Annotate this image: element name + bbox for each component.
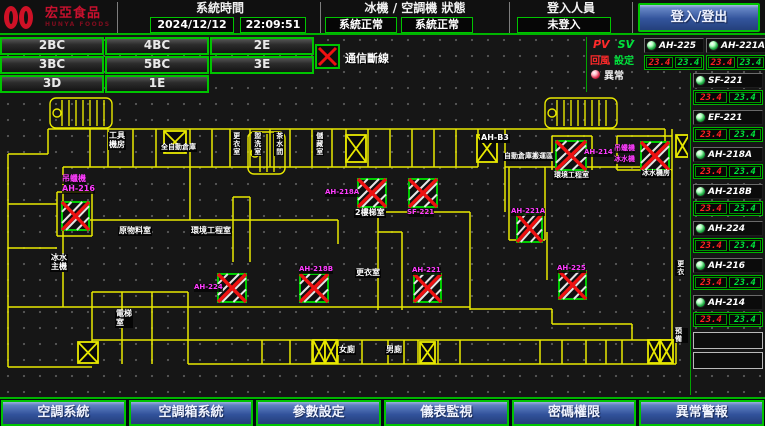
ahu-comm-fail-icon[interactable] (300, 274, 328, 302)
pv-value: 23.4 (695, 129, 727, 140)
unit-label: AH-224 (708, 224, 745, 234)
hatch-box-icon (676, 135, 688, 157)
floor-button-1E[interactable]: 1E (105, 75, 209, 93)
unit-name-row[interactable]: AH-218A (693, 147, 763, 162)
plan-room-label: 更衣 (675, 260, 685, 276)
brand-name: 宏亞食品 (45, 7, 111, 20)
unit-name-row[interactable]: AH-224 (693, 221, 763, 236)
ahu-comm-fail-icon[interactable] (409, 179, 437, 207)
plan-room-label: 原物料室 (118, 227, 152, 236)
plan-equipment-label: 吊蠟機 (62, 175, 86, 184)
unit-AH-224: AH-22423.423.4 (693, 221, 763, 253)
sv-value: 23.4 (729, 314, 761, 325)
plan-equipment-label: AH-218A (325, 189, 359, 197)
plan-equipment-label: AH-221 (412, 267, 441, 275)
unit-label: AH-225 (659, 41, 696, 51)
status-lamp-icon (695, 186, 706, 197)
status-lamp-icon (708, 40, 719, 51)
bottom-nav-bar: 空調系統空調箱系統參數設定儀表監視密碼權限異常警報 (0, 397, 765, 426)
unit-label: AH-216 (708, 261, 745, 271)
unit-name-row[interactable]: EF-221 (693, 110, 763, 125)
sv-value: 23.4 (729, 92, 761, 103)
unit-AH-216: AH-21623.423.4 (693, 258, 763, 290)
sv-value: 23.4 (729, 166, 761, 177)
unit-label: AH-218A (708, 150, 752, 160)
status-lamp-icon (695, 223, 706, 234)
plan-equipment-label: AH-225 (557, 265, 586, 273)
pv-value: 23.4 (695, 203, 727, 214)
plan-equipment-label: AH-224 (194, 284, 223, 292)
ahu-comm-fail-icon[interactable] (414, 274, 441, 302)
unit-name-row[interactable]: AH-214 (693, 295, 763, 310)
unit-name-row[interactable]: AH-221A (706, 38, 765, 53)
unit-values: 23.423.4 (644, 55, 704, 70)
company-logo: 宏亞食品 HUNYA FOODS (4, 3, 116, 32)
header-divider (117, 2, 118, 33)
unit-EF-221: EF-22123.423.4 (693, 110, 763, 142)
ahu-comm-fail-icon[interactable] (358, 179, 386, 207)
plan-room-label: 環境工程室 (190, 227, 232, 236)
plan-equipment-label: AH-216 (62, 185, 95, 194)
plan-room-label: 2樓梯室 (354, 209, 386, 218)
unit-label: SF-221 (708, 76, 743, 86)
header-divider (320, 2, 321, 33)
system-date-value: 2024/12/12 (150, 17, 234, 33)
floor-button-5BC[interactable]: 5BC (105, 56, 209, 74)
plan-room-label: 全自動倉庫 (160, 144, 197, 152)
plan-room-label: 冰水機房 (641, 170, 671, 178)
floor-button-empty (210, 75, 314, 93)
top-unit-row: AH-22523.423.4AH-221A23.423.4 (644, 38, 765, 70)
system-time-label: 系統時間 (130, 1, 310, 15)
plan-equipment-label: 吊蠟機 (614, 145, 635, 153)
nav-button-儀表監視[interactable]: 儀表監視 (384, 400, 509, 426)
sv-label: SV (618, 38, 634, 51)
login-user-label: 登入人員 (512, 1, 630, 15)
unit-values: 23.423.4 (706, 55, 765, 70)
plan-room-label: 冰水 主機 (50, 254, 68, 272)
ahu-comm-fail-icon[interactable] (556, 141, 586, 170)
pv-value: 23.4 (695, 314, 727, 325)
unit-name-row[interactable]: SF-221 (693, 73, 763, 88)
plan-room-label: 盥洗室 (252, 132, 262, 156)
pv-value: 23.4 (708, 57, 735, 68)
unit-values: 23.423.4 (693, 127, 763, 142)
pv-value: 23.4 (695, 277, 727, 288)
unit-AH-225: AH-22523.423.4 (644, 38, 704, 70)
logo-icon (4, 5, 40, 31)
plan-room-label: 儲藏室 (314, 132, 324, 156)
hatch-box-icon (648, 340, 660, 363)
nav-button-空調系統[interactable]: 空調系統 (1, 400, 126, 426)
plan-room-label: 環境工程室 (553, 172, 590, 180)
unit-AH-218B: AH-218B23.423.4 (693, 184, 763, 216)
plan-room-label: 更衣室 (355, 269, 381, 278)
floor-button-3D[interactable]: 3D (0, 75, 104, 93)
floor-button-4BC[interactable]: 4BC (105, 37, 209, 55)
plan-equipment-label: AH-218B (299, 266, 333, 274)
sv-value: 23.4 (729, 129, 761, 140)
unit-values: 23.423.4 (693, 201, 763, 216)
status-lamp-icon (646, 40, 657, 51)
plan-room-label: 茶水間 (274, 132, 284, 156)
plan-equipment-label: AH-214 (584, 149, 613, 157)
plan-room-label: 男廁 (385, 346, 403, 355)
status-lamp-icon (695, 112, 706, 123)
comm-fail-label: 通信斷線 (345, 50, 389, 66)
nav-button-異常警報[interactable]: 異常警報 (639, 400, 764, 426)
ahu-comm-fail-icon[interactable] (517, 214, 542, 242)
unit-name-row[interactable]: AH-218B (693, 184, 763, 199)
plan-equipment-label: AH-221A (511, 208, 545, 216)
system-time-value: 22:09:51 (240, 17, 306, 33)
brand-subname: HUNYA FOODS (45, 22, 111, 28)
sv-value: 23.4 (729, 277, 761, 288)
status-lamp-icon (695, 75, 706, 86)
ahu-comm-fail-icon[interactable] (62, 202, 89, 230)
pv-legend-label: 回風 (590, 52, 610, 67)
status-lamp-icon (695, 260, 706, 271)
logo-arc (4, 6, 18, 29)
login-status-value: 未登入 (517, 17, 611, 33)
sv-legend-label: 設定 (614, 52, 634, 67)
comm-fail-icon (315, 44, 340, 69)
nav-button-參數設定[interactable]: 參數設定 (256, 400, 381, 426)
floor-button-3E[interactable]: 3E (210, 56, 314, 74)
status-lamp-icon (695, 297, 706, 308)
hatch-box-icon (313, 340, 325, 363)
status-lamp-icon (695, 149, 706, 160)
unit-values: 23.423.4 (693, 164, 763, 179)
alarm-lamp-icon (590, 69, 601, 80)
pv-value: 23.4 (646, 57, 673, 68)
plan-equipment-label: SF-221 (407, 209, 434, 217)
floor-button-3BC[interactable]: 3BC (0, 56, 104, 74)
floor-button-2BC[interactable]: 2BC (0, 37, 104, 55)
chiller-status-value: 系統正常 (325, 17, 397, 33)
unit-label: AH-218B (708, 187, 752, 197)
floor-button-2E[interactable]: 2E (210, 37, 314, 55)
plan-room-label: 電梯 室 (115, 310, 133, 328)
unit-label: AH-221A (721, 41, 765, 51)
floor-buttons: 2BC4BC2E3BC5BC3E3D1E (0, 37, 313, 93)
logo-arc (19, 6, 33, 29)
nav-button-空調箱系統[interactable]: 空調箱系統 (129, 400, 254, 426)
plan-room-label: 更衣室 (231, 132, 241, 156)
header-bar: 宏亞食品 HUNYA FOODS 系統時間 2024/12/12 22:09:5… (0, 0, 765, 35)
plan-room-label: 預備 (674, 328, 688, 343)
hatch-box-icon (325, 340, 337, 363)
ahu-comm-fail-icon[interactable] (559, 271, 586, 299)
ac-status-value: 系統正常 (401, 17, 473, 33)
plan-room-label: 自動倉庫搬運區 (503, 153, 554, 161)
chiller-status-label: 冰機 / 空調機 狀態 (324, 1, 506, 15)
stair-icon (545, 98, 617, 128)
pv-sv-legend: PV SV 回風 設定 異常 (589, 37, 643, 92)
floor-plan: 工具 機房全自動倉庫更衣室盥洗室茶水間儲藏室AH-B3自動倉庫搬運區環境工程室冰… (0, 92, 688, 395)
unit-name-row[interactable]: AH-216 (693, 258, 763, 273)
empty-unit-slot (693, 352, 763, 369)
sv-value: 23.4 (729, 240, 761, 251)
hatch-box-icon (78, 342, 98, 363)
stair-icon (50, 98, 112, 128)
unit-name-row[interactable]: AH-225 (644, 38, 704, 53)
unit-AH-218A: AH-218A23.423.4 (693, 147, 763, 179)
ahu-comm-fail-icon[interactable] (641, 142, 669, 170)
login-logout-button[interactable]: 登入/登出 (638, 3, 760, 32)
empty-unit-slot (693, 332, 763, 349)
unit-values: 23.423.4 (693, 90, 763, 105)
plan-room-label: AH-B3 (480, 134, 510, 143)
brand-text: 宏亞食品 HUNYA FOODS (45, 7, 111, 28)
unit-AH-221A: AH-221A23.423.4 (706, 38, 765, 70)
unit-AH-214: AH-21423.423.4 (693, 295, 763, 327)
unit-values: 23.423.4 (693, 312, 763, 327)
unit-column: SF-22123.423.4EF-22123.423.4AH-218A23.42… (690, 73, 764, 395)
unit-label: AH-214 (708, 298, 745, 308)
pv-value: 23.4 (695, 166, 727, 177)
pv-value: 23.4 (695, 240, 727, 251)
pv-label: PV (593, 38, 610, 51)
sv-value: 23.4 (729, 203, 761, 214)
nav-button-密碼權限[interactable]: 密碼權限 (512, 400, 637, 426)
unit-values: 23.423.4 (693, 238, 763, 253)
hmi-screen: 宏亞食品 HUNYA FOODS 系統時間 2024/12/12 22:09:5… (0, 0, 765, 426)
header-divider (632, 2, 633, 33)
plan-room-label: 女廁 (338, 346, 356, 355)
hatch-box-icon (346, 135, 366, 162)
sv-value: 23.4 (675, 57, 702, 68)
plan-room-label: 工具 機房 (108, 132, 126, 150)
pv-value: 23.4 (695, 92, 727, 103)
unit-values: 23.423.4 (693, 275, 763, 290)
plan-equipment-label: 冰水機 (614, 156, 635, 164)
hatch-box-icon (660, 340, 673, 363)
unit-label: EF-221 (708, 113, 742, 123)
sv-value: 23.4 (737, 57, 764, 68)
hatch-box-icon (420, 342, 435, 363)
alarm-label: 異常 (604, 67, 624, 82)
header-divider (509, 2, 510, 33)
unit-SF-221: SF-22123.423.4 (693, 73, 763, 105)
